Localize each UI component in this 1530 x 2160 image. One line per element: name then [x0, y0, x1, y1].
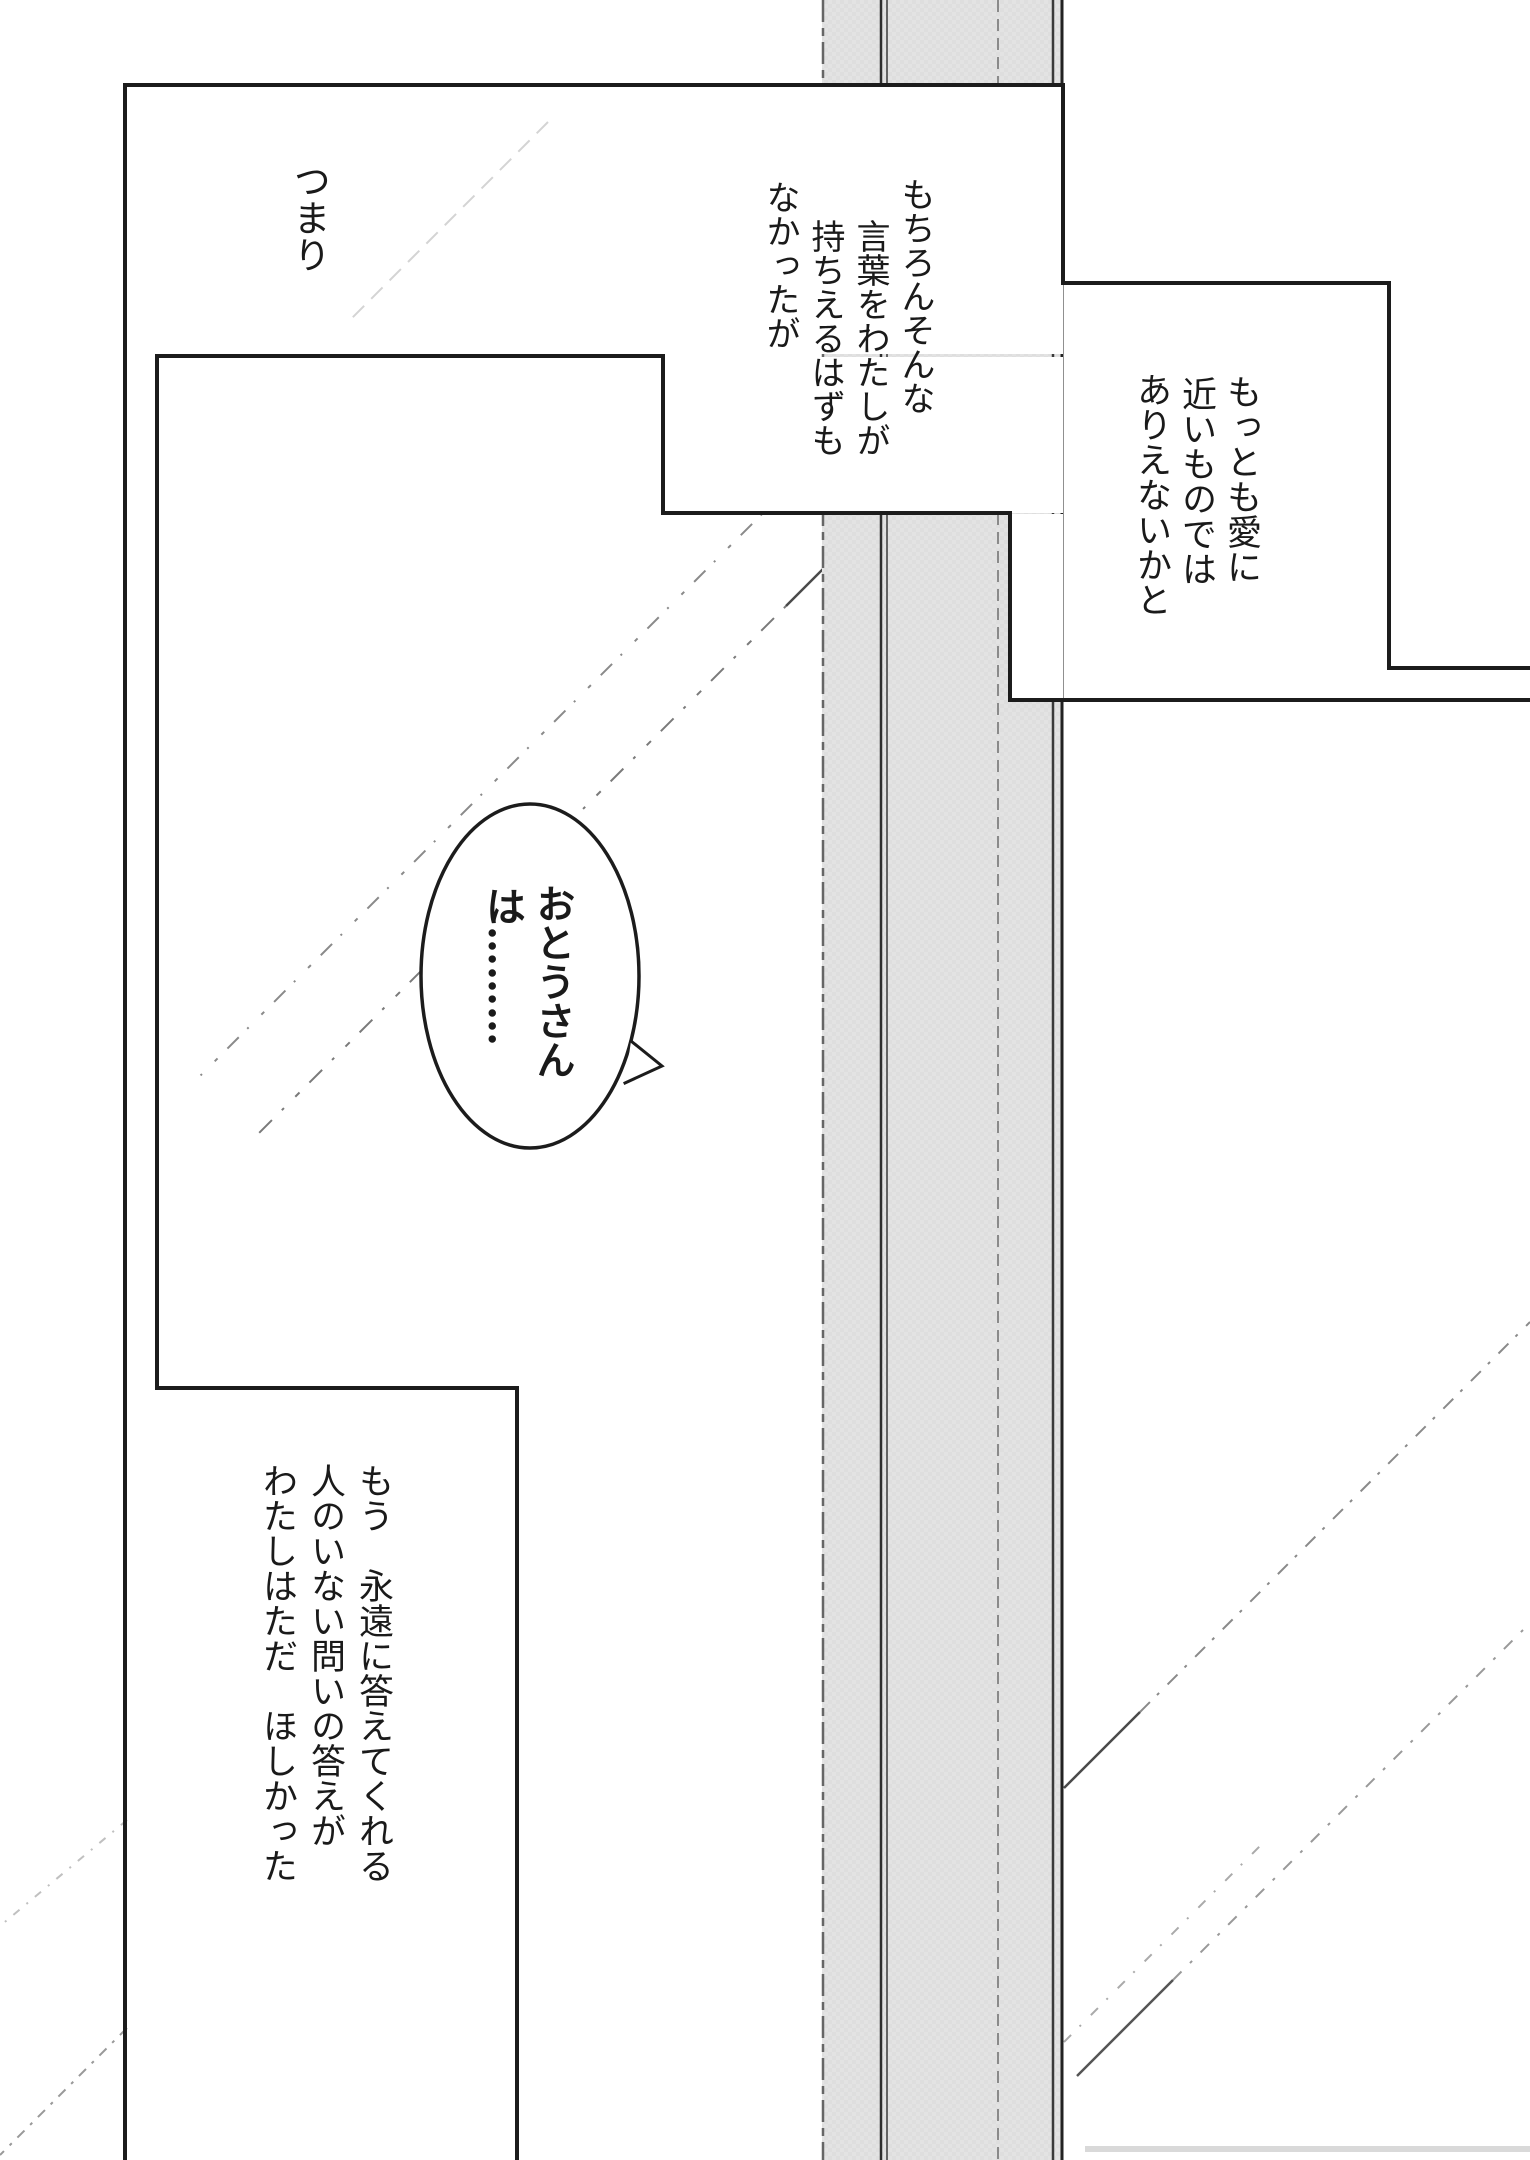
narration-column: 言葉をわたしが — [853, 219, 887, 457]
speedline — [1064, 1712, 1140, 1788]
narration-column: 持ちえるはずも — [808, 219, 842, 457]
narration-column: もちろんそんな — [898, 177, 932, 415]
manga-page: つまり もちろんそんな 言葉をわたしが 持ちえるはずも なかったが もっとも愛に… — [0, 0, 1530, 2160]
speedline — [1140, 1322, 1530, 1712]
vertical-ellipsis: ……… — [479, 926, 526, 1046]
bubble-text-particle: は……… — [482, 886, 522, 1046]
panel1-fill-right — [1010, 514, 1063, 700]
bubble-text-name: おとうさん — [533, 884, 572, 1079]
narration-column: もう 永遠に答えてくれる — [355, 1463, 390, 1883]
speedlines-right-region — [1064, 1322, 1530, 2149]
narration-column: もっとも愛に — [1223, 374, 1258, 584]
speedlines-left-margin — [0, 1820, 127, 2155]
narration-column: なかったが — [763, 180, 797, 350]
speedline — [0, 1820, 127, 1926]
narration-column: 近いものでは — [1178, 376, 1213, 586]
bubble-particle: は — [479, 886, 526, 926]
narration-column: ありえないかと — [1133, 372, 1168, 617]
speedline — [1077, 1980, 1173, 2076]
narration-tsumari: つまり — [290, 162, 327, 273]
narration-column: わたしはただ ほしかった — [259, 1463, 294, 1883]
speedline — [786, 568, 824, 606]
speedline — [1173, 1623, 1530, 1980]
speedline — [0, 2028, 127, 2155]
speedline — [1064, 1844, 1262, 2042]
narration-column: 人のいない問いの答えが — [307, 1463, 342, 1848]
